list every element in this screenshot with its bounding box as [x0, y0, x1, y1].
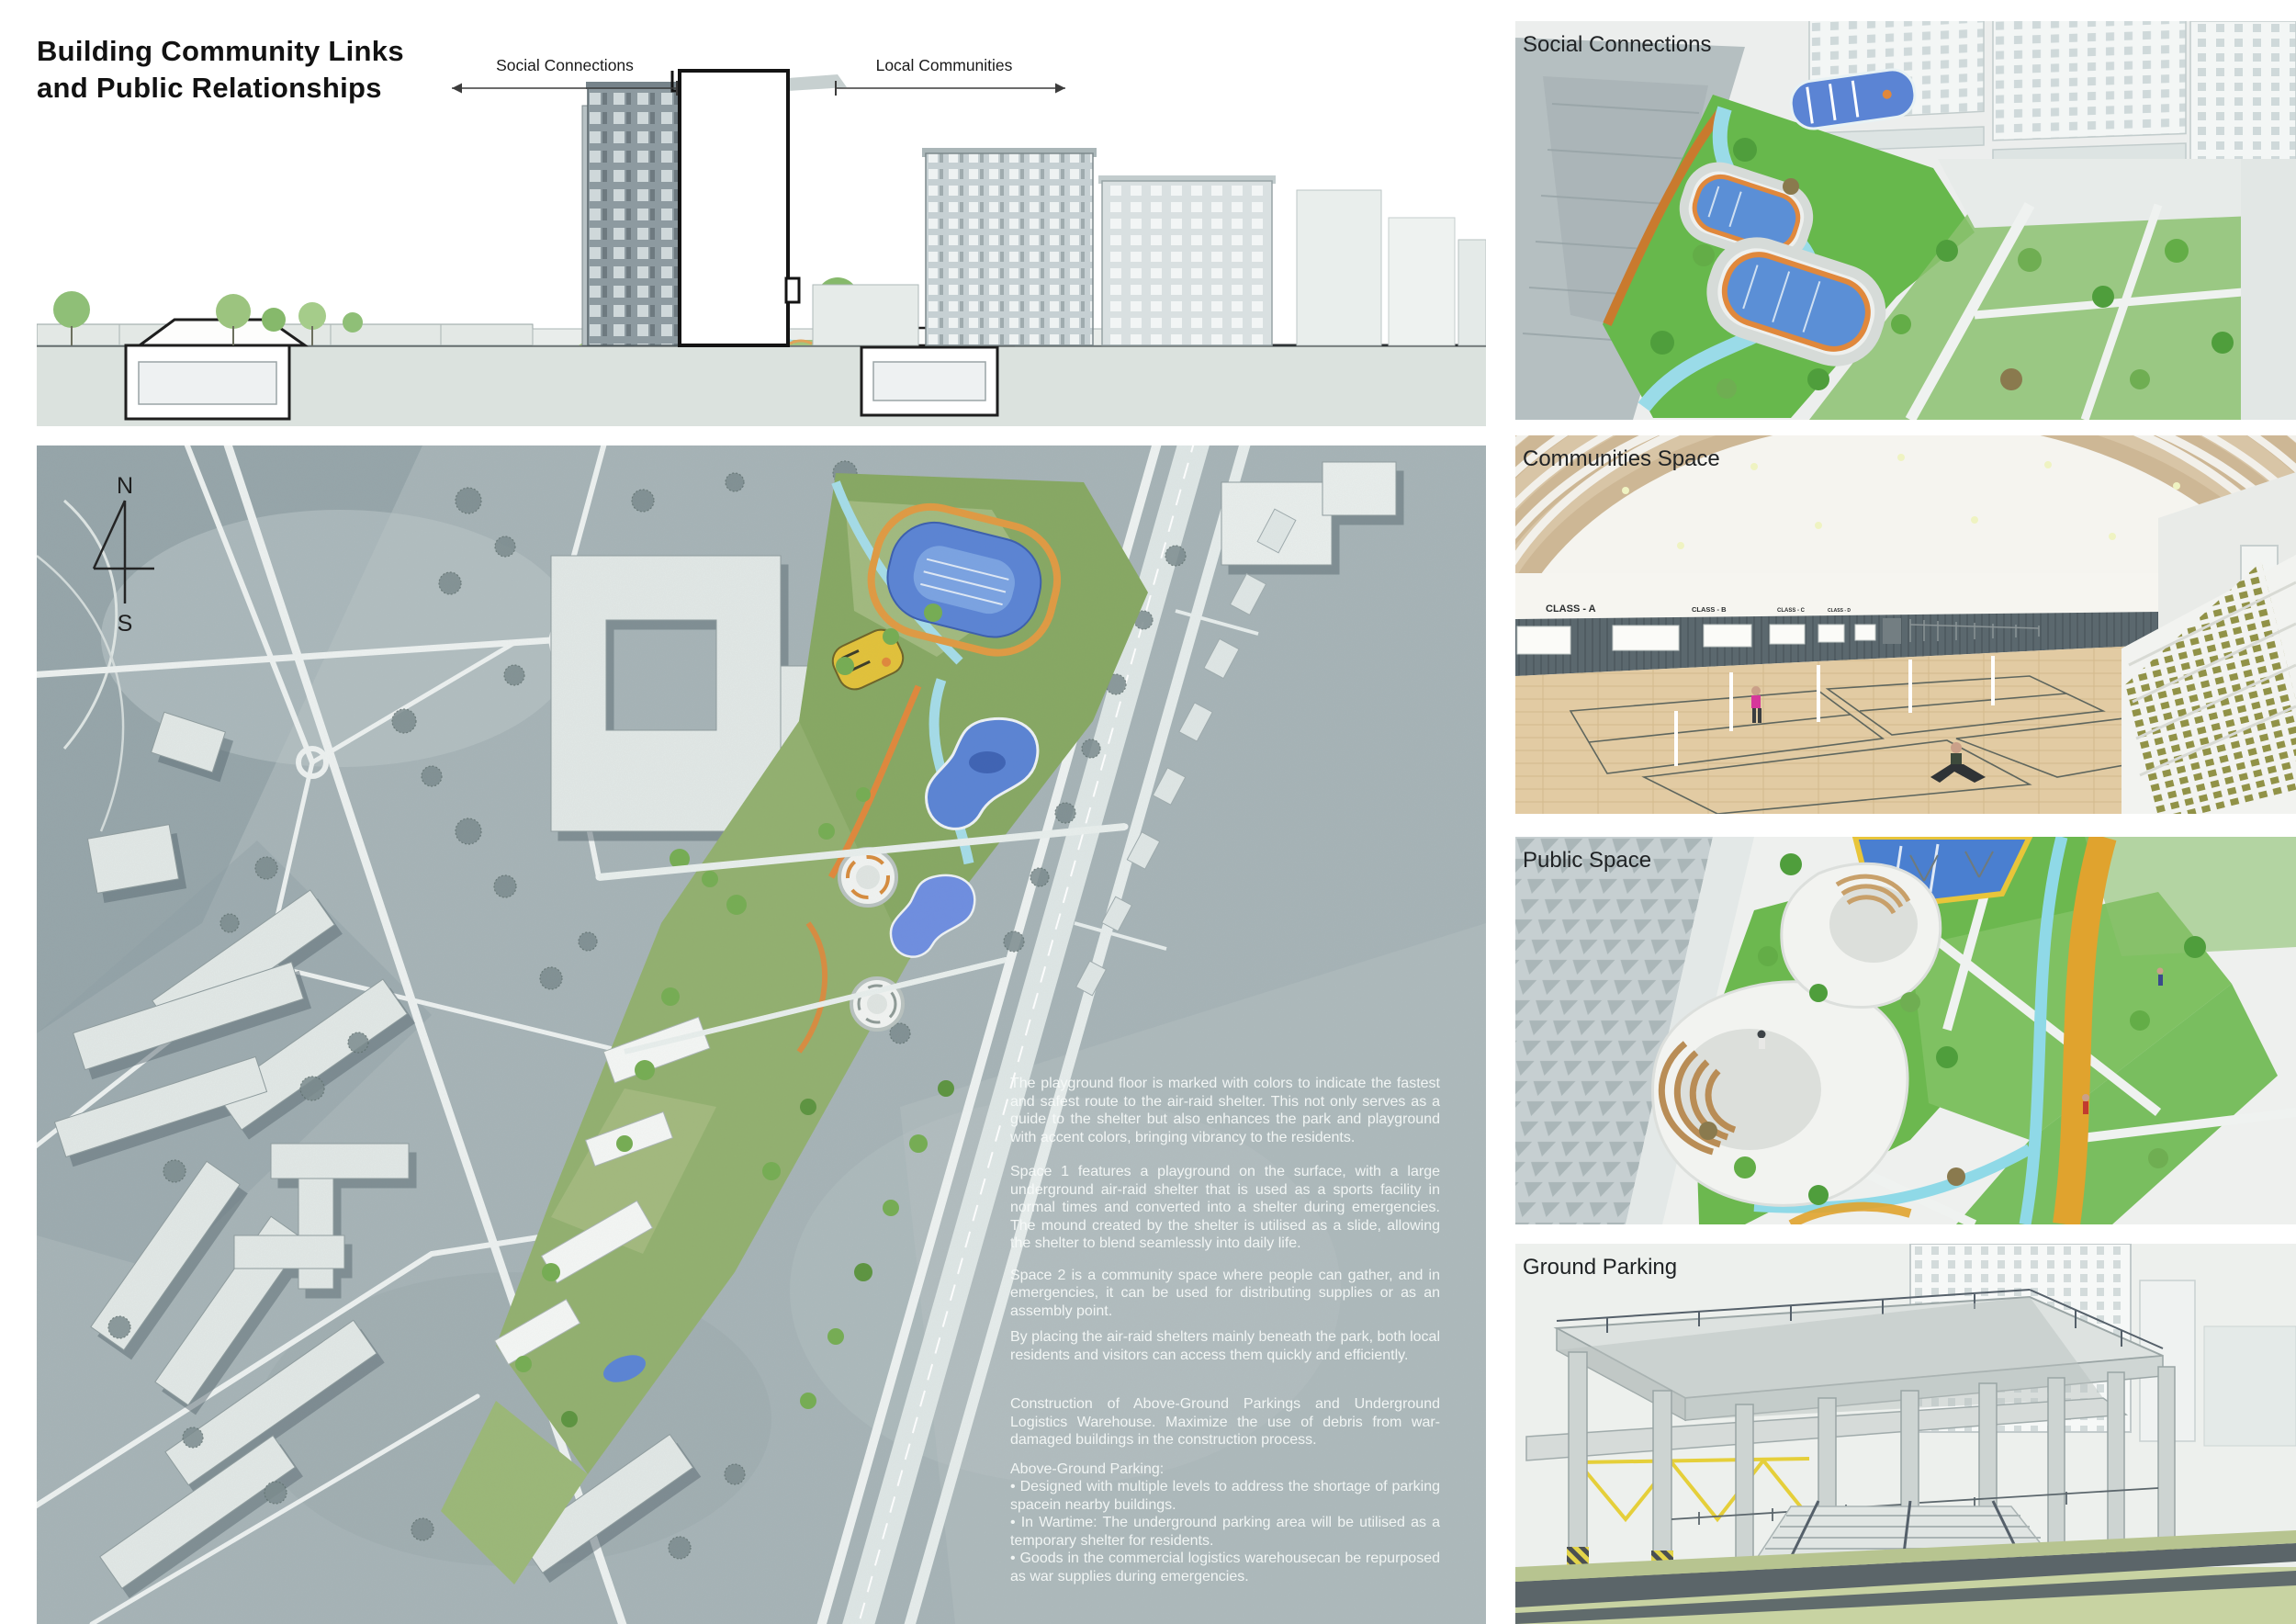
- render-panel-public-space: Public Space: [1515, 837, 2296, 1224]
- arrow-right-icon: [1055, 84, 1065, 94]
- plan-description: The playground floor is marked with colo…: [1010, 1075, 1440, 1585]
- plan-paragraph: By placing the air-raid shelters mainly …: [1010, 1328, 1440, 1364]
- plan-bullet: • In Wartime: The underground parking ar…: [1010, 1514, 1440, 1550]
- panel-label-ground-parking: Ground Parking: [1523, 1255, 1677, 1280]
- panel-label-communities-space: Communities Space: [1523, 446, 1720, 472]
- amphitheater-large: [1652, 982, 1908, 1206]
- class-sign: CLASS - D: [1828, 608, 1851, 614]
- local-communities-label: Local Communities: [876, 56, 1013, 74]
- public-space-render: [1515, 837, 2296, 1224]
- section-midrise-buildings: [813, 148, 1486, 345]
- plan-paragraph: Space 1 features a playground on the sur…: [1010, 1163, 1440, 1253]
- plan-bullet: • Goods in the commercial logistics ware…: [1010, 1550, 1440, 1585]
- section-tower: [582, 82, 689, 345]
- plan-paragraph: Space 2 is a community space where peopl…: [1010, 1267, 1440, 1321]
- class-sign: CLASS - B: [1692, 605, 1727, 614]
- communities-space-render: CLASS - A CLASS - B CLASS - C CLASS - D: [1515, 435, 2296, 814]
- render-panel-ground-parking: Ground Parking: [1515, 1244, 2296, 1624]
- social-connections-render: [1515, 21, 2296, 420]
- air-raid-shelter-section-1: [126, 320, 305, 419]
- panel-label-social-connections: Social Connections: [1523, 32, 1711, 58]
- class-sign: CLASS - A: [1546, 603, 1596, 615]
- class-sign: CLASS - C: [1777, 608, 1806, 614]
- panel-label-public-space: Public Space: [1523, 848, 1651, 874]
- presentation-board: Building Community Links and Public Rela…: [0, 0, 2296, 1624]
- plan-paragraph: The playground floor is marked with colo…: [1010, 1075, 1440, 1146]
- plan-bullet: • Designed with multiple levels to addre…: [1010, 1478, 1440, 1514]
- amphitheater-small: [1782, 863, 1941, 1007]
- plan-paragraph: Above-Ground Parking:: [1010, 1460, 1440, 1479]
- ground-parking-render: [1515, 1244, 2296, 1624]
- render-panel-social-connections: Social Connections: [1515, 21, 2296, 420]
- section-elevation-figure: Social Connections Local Communities: [37, 51, 1486, 432]
- social-connections-label: Social Connections: [496, 56, 634, 74]
- render-panel-communities-space: CLASS - A CLASS - B CLASS - C CLASS - D: [1515, 435, 2296, 814]
- plan-paragraph: Construction of Above-Ground Parkings an…: [1010, 1395, 1440, 1449]
- arrow-left-icon: [452, 84, 462, 94]
